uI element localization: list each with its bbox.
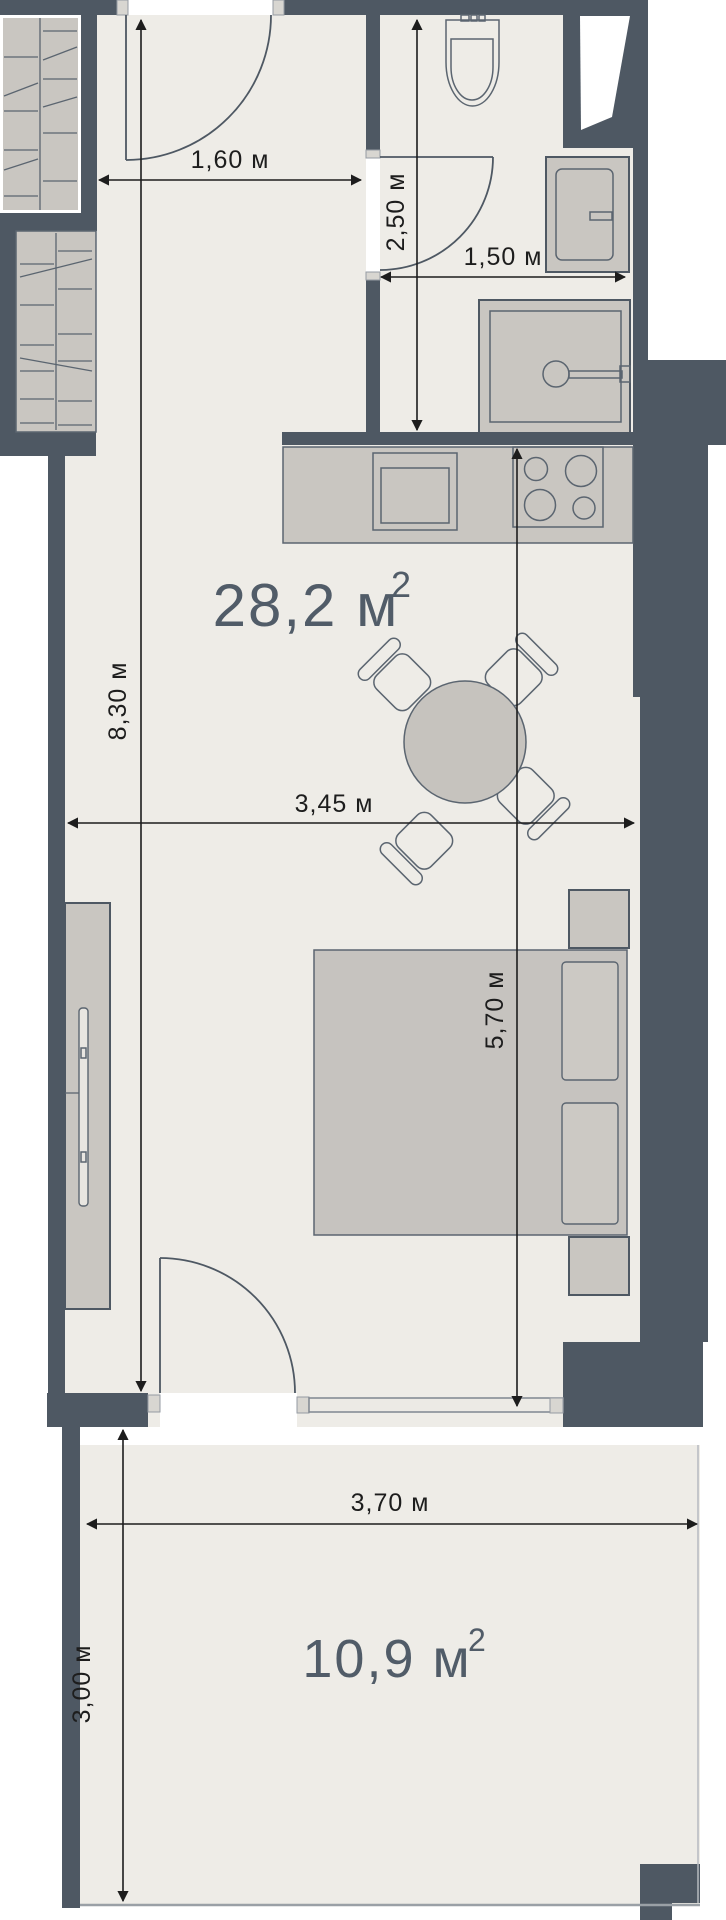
wall-east-upper xyxy=(633,148,648,360)
dim-room-length: 8,30 м xyxy=(104,662,132,741)
wall-west xyxy=(48,456,65,1394)
entry-opening xyxy=(128,0,273,15)
nightstand-north xyxy=(569,890,629,948)
balcony-door-opening xyxy=(160,1393,297,1427)
wall-wardrobe-right xyxy=(81,15,97,231)
dim-bath-depth: 2,50 м xyxy=(382,173,410,252)
bath-jamb-top xyxy=(366,150,380,158)
main-area-sup: 2 xyxy=(391,564,413,605)
wall-wardrobe-left xyxy=(0,231,16,432)
nightstand-south xyxy=(569,1237,629,1295)
floor-plan: 1,60 м 2,50 м 1,50 м 8,30 м 3,45 м 5,70 … xyxy=(0,0,726,1920)
wall-south-west xyxy=(47,1393,148,1427)
wall-balcony-stub-v xyxy=(640,1864,672,1920)
bath-jamb-bottom xyxy=(366,272,380,280)
wall-wardrobe-mid xyxy=(0,213,81,231)
wall-southeast-block xyxy=(563,1342,703,1427)
kitchen-counter xyxy=(283,447,633,543)
tv-sideboard xyxy=(65,903,110,1309)
bed xyxy=(314,950,627,1235)
wall-kitchen-east-block xyxy=(633,360,726,445)
wall-east-mid xyxy=(633,445,708,697)
shower xyxy=(479,300,630,433)
balcony-area-label: 10,9 м xyxy=(302,1629,471,1689)
dim-living-length: 5,70 м xyxy=(481,971,509,1050)
washing-machine xyxy=(546,157,629,272)
wall-balcony-stub-h xyxy=(672,1864,700,1903)
south-window xyxy=(309,1398,563,1412)
floor-plan-canvas: 1,60 м 2,50 м 1,50 м 8,30 м 3,45 м 5,70 … xyxy=(0,0,726,1920)
wall-wardrobe-bottom xyxy=(0,432,96,456)
wall-bath-west-upper xyxy=(366,15,380,150)
pillow xyxy=(562,962,618,1080)
wall-bath-west-lower xyxy=(366,280,380,432)
dim-balcony-width: 3,70 м xyxy=(351,1489,430,1517)
wall-top-left xyxy=(0,0,117,15)
dim-hall-width: 1,60 м xyxy=(191,146,270,174)
pillow xyxy=(562,1103,618,1224)
dining-table xyxy=(404,681,526,803)
wardrobe-2 xyxy=(16,231,96,432)
balcony-jamb-right xyxy=(297,1397,309,1413)
dim-room-width: 3,45 м xyxy=(295,790,374,818)
balcony-area-sup: 2 xyxy=(468,1622,488,1658)
dim-bath-width: 1,50 м xyxy=(464,243,543,271)
wardrobe-1 xyxy=(2,17,80,212)
entry-jamb-right xyxy=(273,0,284,15)
dim-balcony-depth: 3,00 м xyxy=(68,1645,96,1724)
wall-east-lower xyxy=(640,697,708,1342)
window-cap-right xyxy=(550,1398,563,1413)
main-area-label: 28,2 м xyxy=(213,572,400,639)
tv-icon xyxy=(79,1008,88,1206)
balcony-jamb-left xyxy=(148,1395,160,1412)
entry-jamb-left xyxy=(117,0,128,15)
